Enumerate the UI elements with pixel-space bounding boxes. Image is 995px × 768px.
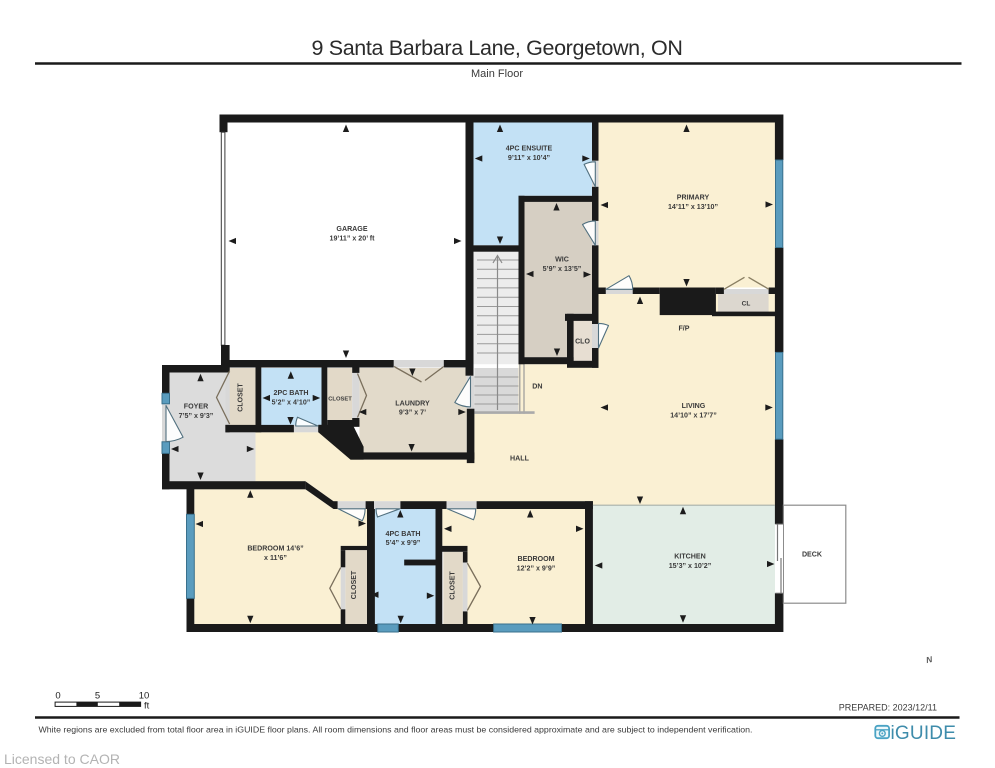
svg-text:BEDROOM 14’6”: BEDROOM 14’6” bbox=[247, 545, 304, 553]
svg-text:14’10” x 17’7”: 14’10” x 17’7” bbox=[670, 412, 717, 420]
svg-text:White regions are excluded fro: White regions are excluded from total fl… bbox=[39, 725, 753, 735]
svg-text:9 Santa Barbara Lane, Georgeto: 9 Santa Barbara Lane, Georgetown, ON bbox=[311, 36, 682, 60]
svg-text:DECK: DECK bbox=[802, 551, 823, 559]
svg-text:PREPARED: 2023/12/11: PREPARED: 2023/12/11 bbox=[839, 703, 937, 713]
svg-text:5: 5 bbox=[95, 691, 100, 702]
svg-text:5’4” x 9’9”: 5’4” x 9’9” bbox=[386, 539, 421, 547]
svg-text:CL: CL bbox=[742, 301, 751, 308]
svg-text:HALL: HALL bbox=[510, 455, 530, 463]
svg-text:7’5” x 9’3”: 7’5” x 9’3” bbox=[179, 412, 214, 420]
svg-text:5’2” x 4’10”: 5’2” x 4’10” bbox=[272, 399, 311, 407]
svg-text:PRIMARY: PRIMARY bbox=[677, 194, 710, 202]
svg-text:CLOSET: CLOSET bbox=[450, 571, 457, 600]
svg-text:0: 0 bbox=[55, 691, 60, 702]
svg-text:F/P: F/P bbox=[678, 325, 689, 333]
svg-text:19’11” x 20’ ft: 19’11” x 20’ ft bbox=[330, 235, 376, 243]
svg-text:CLOSET: CLOSET bbox=[328, 397, 352, 403]
svg-text:Main Floor: Main Floor bbox=[471, 68, 523, 80]
svg-text:DN: DN bbox=[532, 382, 542, 390]
svg-text:12’2” x 9’9”: 12’2” x 9’9” bbox=[517, 565, 556, 573]
svg-text:iGUIDE: iGUIDE bbox=[891, 723, 957, 744]
svg-text:LAUNDRY: LAUNDRY bbox=[395, 400, 430, 408]
svg-text:15’3” x 10’2”: 15’3” x 10’2” bbox=[669, 562, 712, 570]
svg-text:ft: ft bbox=[144, 701, 150, 712]
svg-text:5’9” x 13’5”: 5’9” x 13’5” bbox=[543, 265, 582, 273]
svg-text:14’11” x 13’10”: 14’11” x 13’10” bbox=[668, 203, 719, 211]
svg-text:9’3” x 7’: 9’3” x 7’ bbox=[399, 409, 426, 417]
svg-text:9’11” x 10’4”: 9’11” x 10’4” bbox=[508, 154, 551, 162]
svg-text:WIC: WIC bbox=[555, 256, 569, 264]
svg-text:BEDROOM: BEDROOM bbox=[517, 555, 554, 563]
svg-text:4PC ENSUITE: 4PC ENSUITE bbox=[506, 145, 553, 153]
svg-text:4PC BATH: 4PC BATH bbox=[386, 530, 421, 538]
svg-text:FOYER: FOYER bbox=[184, 403, 208, 411]
svg-text:CLO: CLO bbox=[575, 339, 590, 346]
svg-text:x 11’6”: x 11’6” bbox=[264, 554, 287, 562]
svg-text:GARAGE: GARAGE bbox=[336, 225, 367, 233]
svg-text:CLOSET: CLOSET bbox=[351, 570, 358, 599]
svg-text:2PC BATH: 2PC BATH bbox=[274, 389, 309, 397]
svg-text:KITCHEN: KITCHEN bbox=[674, 553, 706, 561]
svg-text:CLOSET: CLOSET bbox=[237, 383, 244, 412]
svg-text:LIVING: LIVING bbox=[682, 402, 706, 410]
svg-text:Licensed to CAOR: Licensed to CAOR bbox=[4, 751, 120, 767]
